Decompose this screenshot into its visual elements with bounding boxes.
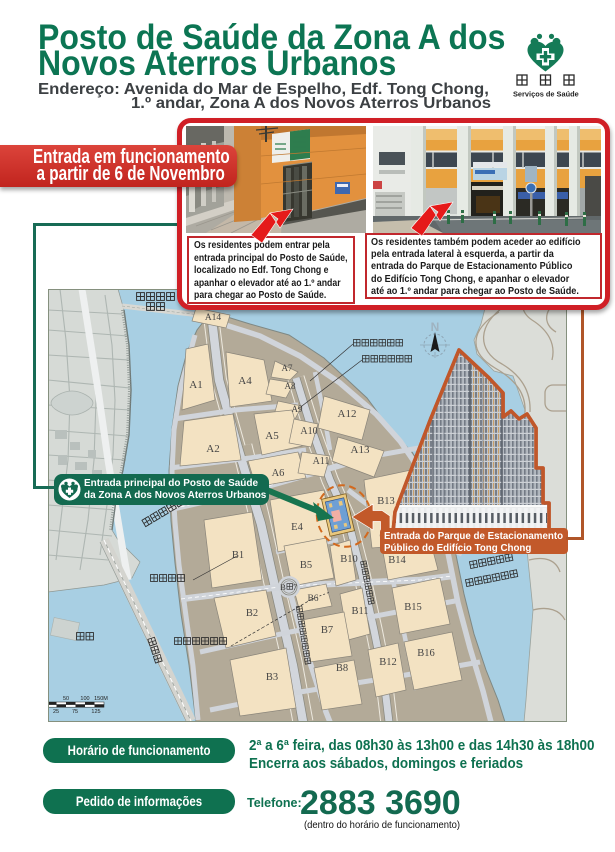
- svg-text:A7: A7: [282, 363, 293, 373]
- svg-text:75: 75: [72, 709, 78, 715]
- svg-text:A12: A12: [338, 408, 357, 420]
- svg-text:B13: B13: [377, 496, 395, 507]
- svg-text:B12: B12: [379, 657, 397, 668]
- svg-text:B5: B5: [300, 560, 312, 571]
- svg-text:125: 125: [91, 709, 100, 715]
- svg-text:A5: A5: [265, 430, 279, 442]
- svg-text:150M: 150M: [94, 696, 108, 702]
- svg-text:100: 100: [80, 696, 89, 702]
- svg-text:B10: B10: [340, 554, 358, 565]
- svg-text:25: 25: [53, 709, 59, 715]
- svg-text:B1: B1: [232, 550, 244, 561]
- svg-text:A2: A2: [206, 443, 219, 455]
- svg-text:E4: E4: [291, 522, 303, 533]
- svg-text:A11: A11: [313, 456, 330, 467]
- svg-text:B14: B14: [388, 555, 406, 566]
- svg-text:B8: B8: [336, 663, 348, 674]
- svg-text:B11: B11: [351, 606, 368, 617]
- svg-text:A13: A13: [351, 444, 370, 456]
- svg-text:B15: B15: [404, 602, 422, 613]
- svg-text:A9: A9: [292, 404, 303, 414]
- svg-text:A8: A8: [285, 381, 296, 391]
- svg-text:A10: A10: [300, 426, 317, 437]
- svg-text:A14: A14: [205, 313, 222, 323]
- svg-text:N: N: [431, 320, 440, 334]
- svg-text:B16: B16: [417, 648, 435, 659]
- svg-text:B2: B2: [246, 608, 258, 619]
- svg-text:A6: A6: [272, 468, 285, 479]
- svg-text:B6: B6: [307, 594, 318, 604]
- svg-text:A1: A1: [189, 379, 202, 391]
- svg-text:A4: A4: [238, 375, 252, 387]
- svg-text:B3: B3: [266, 672, 278, 683]
- svg-text:B: B: [280, 582, 286, 592]
- svg-text:B7: B7: [321, 625, 333, 636]
- svg-text:7: 7: [293, 582, 297, 592]
- svg-text:50: 50: [63, 696, 69, 702]
